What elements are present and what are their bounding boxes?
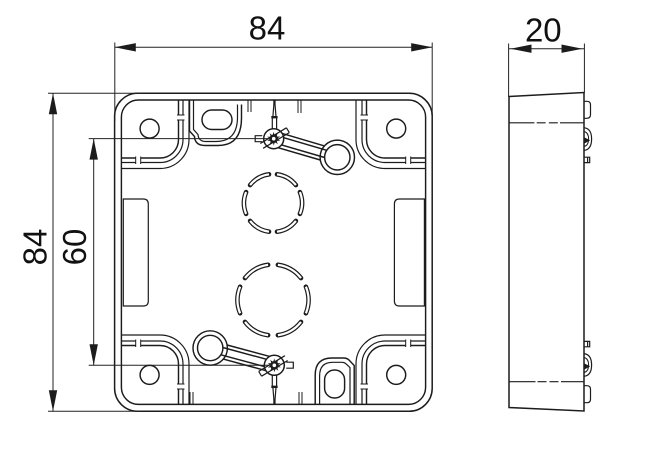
svg-text:60: 60	[56, 229, 93, 266]
svg-text:20: 20	[525, 12, 562, 49]
svg-text:84: 84	[249, 10, 286, 47]
svg-text:84: 84	[17, 229, 54, 266]
